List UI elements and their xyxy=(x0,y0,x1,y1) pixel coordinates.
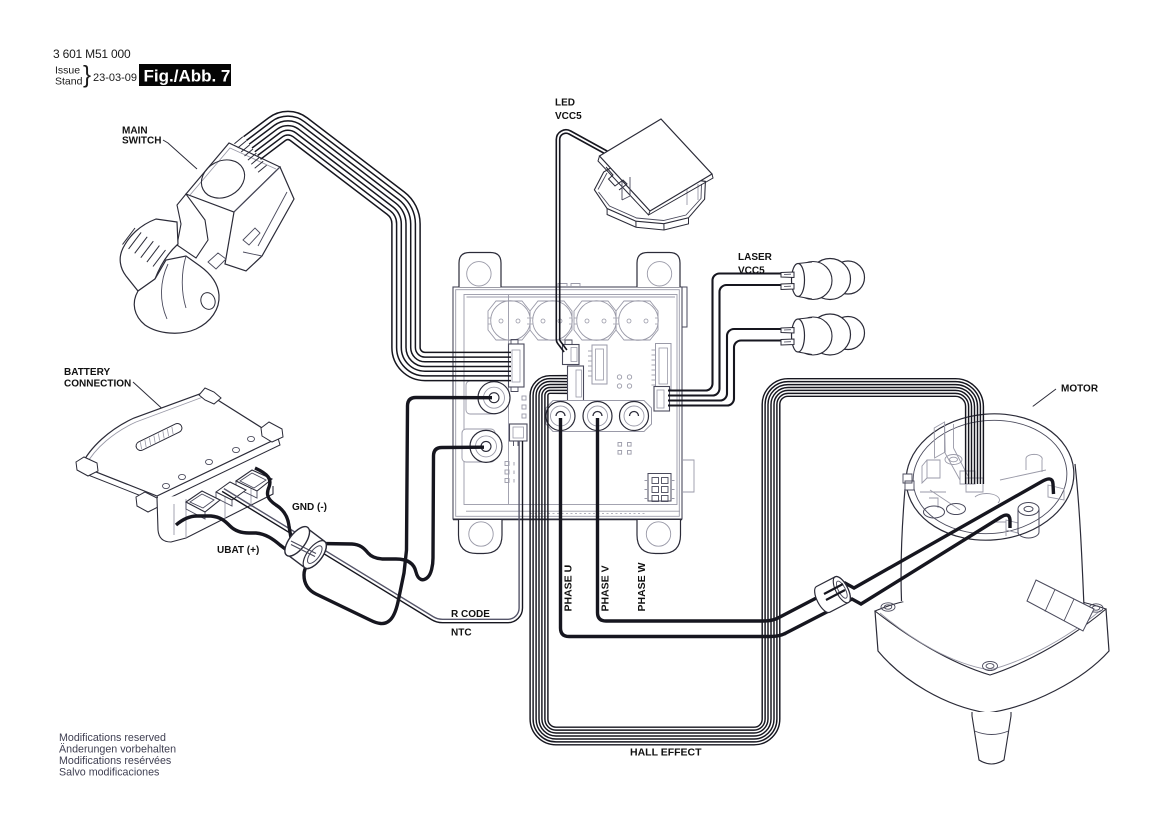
svg-text:Salvo modificaciones: Salvo modificaciones xyxy=(59,767,159,779)
svg-text:NTC: NTC xyxy=(451,628,472,639)
svg-text:HALL EFFECT: HALL EFFECT xyxy=(630,747,702,759)
svg-text:PHASE V: PHASE V xyxy=(600,565,612,611)
svg-text:UBAT (+): UBAT (+) xyxy=(217,545,259,556)
svg-text:VCC5: VCC5 xyxy=(555,111,582,122)
svg-text:Modifications reserved: Modifications reserved xyxy=(59,732,166,744)
svg-text:GND (-): GND (-) xyxy=(292,502,327,513)
svg-text:R CODE: R CODE xyxy=(451,609,490,620)
svg-text:3 601 M51 000: 3 601 M51 000 xyxy=(53,47,131,61)
svg-text:Stand: Stand xyxy=(55,76,83,88)
svg-text:MOTOR: MOTOR xyxy=(1061,384,1099,395)
svg-text:SWITCH: SWITCH xyxy=(122,136,161,147)
svg-text:VCC5: VCC5 xyxy=(738,266,765,277)
svg-text:BATTERY: BATTERY xyxy=(64,367,110,378)
svg-text:LED: LED xyxy=(555,98,575,109)
svg-text:CONNECTION: CONNECTION xyxy=(64,379,131,390)
svg-text:23-03-09: 23-03-09 xyxy=(93,72,137,84)
svg-text:PHASE U: PHASE U xyxy=(563,565,575,612)
svg-text:LASER: LASER xyxy=(738,252,773,263)
svg-text:PHASE W: PHASE W xyxy=(636,562,648,611)
svg-text:}: } xyxy=(83,62,91,89)
svg-text:Fig./Abb. 7: Fig./Abb. 7 xyxy=(144,67,231,86)
svg-text:Modifications resérvées: Modifications resérvées xyxy=(59,755,171,767)
svg-text:Änderungen vorbehalten: Änderungen vorbehalten xyxy=(59,744,176,756)
